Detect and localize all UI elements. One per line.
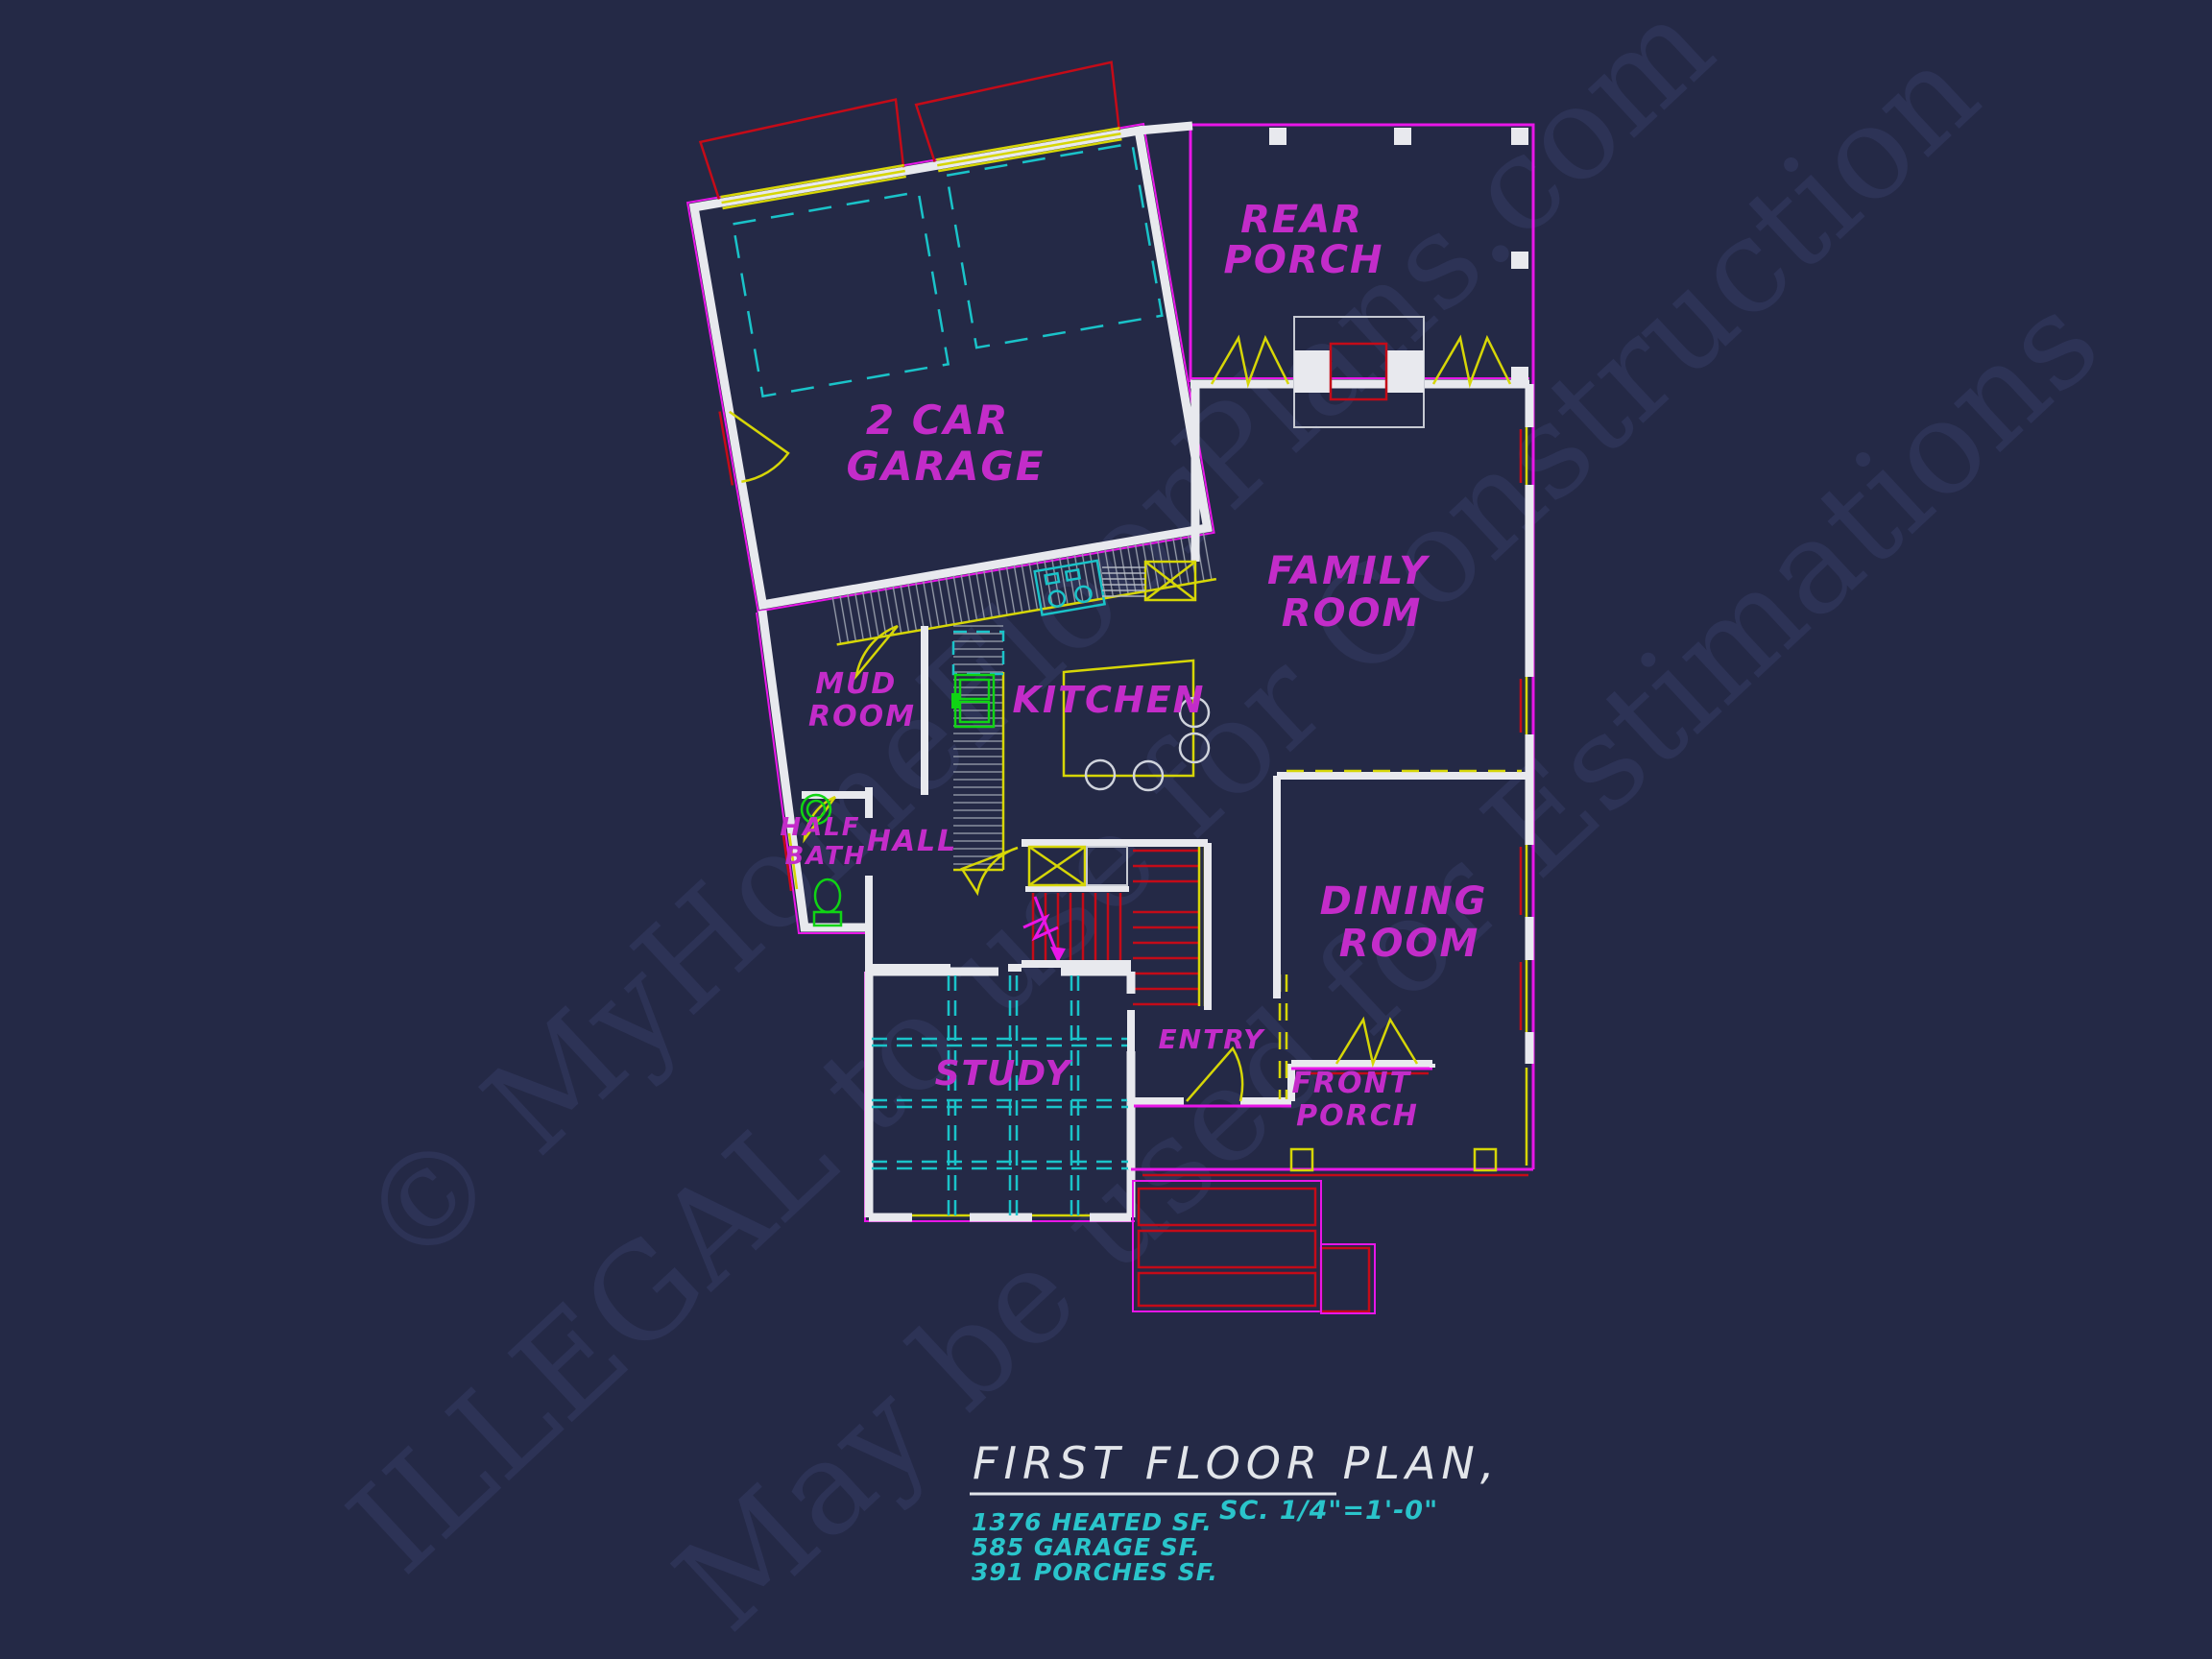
mud-room-label-line1: MUD — [815, 667, 897, 701]
family-room-label: FAMILY ROOM — [1267, 549, 1444, 636]
fireplace-pier-left — [1294, 350, 1331, 393]
family-room-label-line2: ROOM — [1282, 591, 1423, 636]
kitchen-counter-left — [953, 624, 1003, 870]
stat-porches-sf: 391 PORCHES SF. — [972, 1558, 1218, 1586]
half-bath-label: HALF BATH — [780, 813, 871, 871]
overhead-door-track-left — [733, 192, 949, 397]
rear-porch-label-line1: REAR — [1240, 198, 1363, 242]
title-block: FIRST FLOOR PLAN, SC. 1/4"=1'-0" 1376 HE… — [970, 1437, 1500, 1586]
porch-column — [1291, 1149, 1312, 1170]
entry-label: ENTRY — [1159, 1023, 1266, 1055]
family-room-label-line1: FAMILY — [1267, 549, 1431, 593]
entry-label-line1: ENTRY — [1159, 1023, 1266, 1055]
garage-label-line2: GARAGE — [847, 443, 1046, 490]
porch-column — [1475, 1149, 1496, 1170]
half-bath-label-line2: BATH — [785, 842, 867, 871]
garage-porch-link-wall — [1139, 126, 1192, 131]
floor-plan-canvas: © MyHomeFloorPlans.com ILLEGAL to use fo… — [0, 0, 2212, 1659]
front-porch-label-line1: FRONT — [1291, 1067, 1411, 1100]
porch-column — [1511, 367, 1528, 384]
floor-plan-page: © MyHomeFloorPlans.com ILLEGAL to use fo… — [0, 0, 2212, 1659]
mud-room-label: MUD ROOM — [808, 667, 916, 733]
study-label-line1: STUDY — [935, 1054, 1074, 1094]
porch-column — [1511, 128, 1528, 145]
porch-column — [1269, 128, 1286, 145]
stat-heated-sf: 1376 HEATED SF. — [972, 1508, 1213, 1536]
rear-porch-label-line2: PORCH — [1224, 238, 1384, 282]
front-porch-label: FRONT PORCH — [1291, 1067, 1423, 1133]
mud-room-label-line2: ROOM — [808, 700, 916, 733]
dining-room-label: DINING ROOM — [1320, 879, 1503, 966]
fireplace-pier-right — [1387, 350, 1424, 393]
study-label: STUDY — [935, 1054, 1074, 1094]
kitchen-label: KITCHEN — [1013, 679, 1206, 721]
dining-room-label-line1: DINING — [1320, 879, 1488, 924]
hall-label-line1: HALL — [867, 825, 958, 858]
plan-title: FIRST FLOOR PLAN, — [973, 1437, 1500, 1489]
hall-label: HALL — [867, 825, 958, 858]
porch-column — [1394, 128, 1411, 145]
dining-room-label-line2: ROOM — [1339, 922, 1480, 966]
stat-garage-sf: 585 GARAGE SF. — [972, 1533, 1201, 1561]
plan-scale: SC. 1/4"=1'-0" — [1219, 1496, 1438, 1526]
kitchen-label-line1: KITCHEN — [1013, 679, 1206, 721]
half-bath-label-line1: HALF — [780, 813, 860, 842]
garage-label-line1: 2 CAR — [866, 397, 1010, 444]
rear-porch-label: REAR PORCH — [1224, 198, 1384, 282]
front-porch-label-line2: PORCH — [1296, 1099, 1419, 1133]
porch-column — [1511, 252, 1528, 269]
garage-label: 2 CAR GARAGE — [847, 397, 1046, 490]
overhead-door-track-right — [947, 143, 1162, 348]
